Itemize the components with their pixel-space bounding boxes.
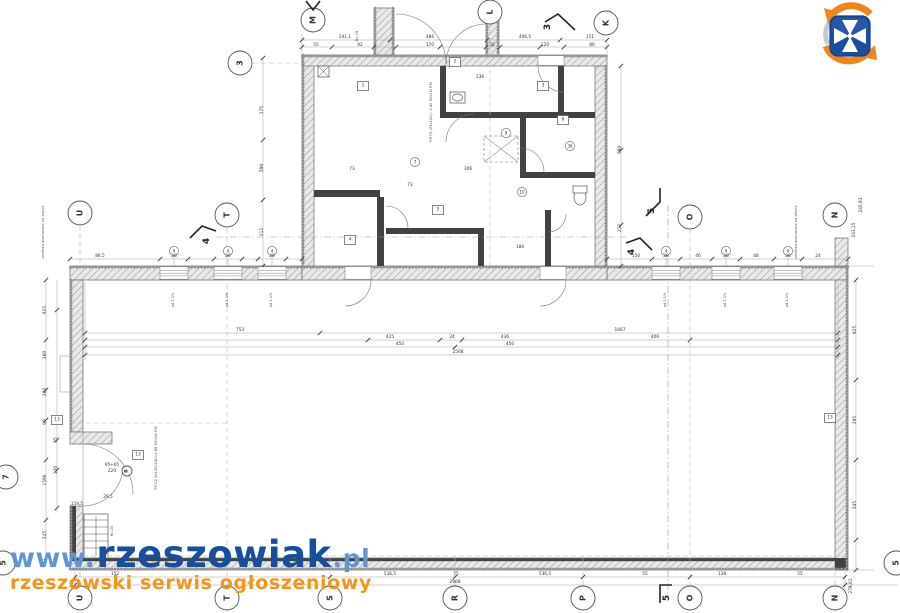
dim-label: 58 [489,42,495,48]
watermark-domain: www.rzeszowiak.pl [10,536,372,573]
dim-label: 48 [753,253,759,259]
window-label: pd 3.1% [171,292,175,307]
dim-label: 925 [42,306,48,314]
dim-label: 28 [171,253,177,259]
ref-label: 4 [227,249,230,254]
watermark-brand: rzeszowiak [96,536,331,573]
dim-label: 75 [453,571,459,577]
window-label: pd 3.1% [225,292,229,307]
window-label: pd 3.1% [723,292,727,307]
axis-label-U: U [76,595,85,602]
floor-plan-drawing: pd 3.1%pd 3.1%pd 3.1%pd 3.1%pd 3.1%pd 3.… [0,0,900,613]
dim-label: 1590 [42,474,48,485]
annotation: P.P.75 (25x120) - 2,40 50x1M P.M [429,82,433,141]
dim-label: 26 [225,253,231,259]
dim-label: 2568 [453,349,464,355]
partition [440,112,595,118]
annotation: Hp 25 [355,31,359,42]
section-label-5: 5 [662,595,672,601]
section-flag [190,226,216,238]
marker-box-label: 13 [54,417,60,423]
dim-label: 486 [426,34,434,40]
door-opening [540,267,566,280]
dim-label: 28 [663,253,669,259]
dim-label: 212 [617,224,623,232]
dim-label: 590 [259,164,265,172]
axis-label-N: N [831,212,840,219]
dim-label: 86 [589,42,595,48]
dim-label: 86,5 [95,253,105,259]
dim-label: 208 [42,388,48,396]
sink-basin [453,94,463,101]
door-opening [538,56,564,66]
watermark-tld: .pl [333,546,370,571]
dim-label: 55 [642,571,648,577]
dim-label: 243,15 [851,222,857,237]
marker-box-label: 13 [827,415,833,421]
axis-label-U: U [76,210,85,217]
dim-label: 28 [785,253,791,259]
dim-label: 1667 [615,327,626,333]
axis-label-K: K [602,19,611,26]
hall-walls [60,238,848,570]
site-logo [824,6,877,61]
dim-label: 28 [269,253,275,259]
marker-box-label: 6 [562,117,565,123]
dim-label: 55 [313,42,319,48]
dim-label: 119,5 [71,501,84,507]
ref-label: 4 [787,249,790,254]
axis-label-N: N [831,595,840,602]
door-arc [386,206,408,228]
dim-label: 279,81 [848,578,854,593]
marker-box-label: 3 [542,83,545,89]
dim-label: 925 [852,326,858,334]
dim-label: 120 [53,466,59,474]
dim-label: 450 [506,341,514,347]
dim-label: 73 [349,166,355,172]
section-label-4: 4 [202,238,212,244]
marker-box-label: 1 [362,83,365,89]
hall-inner-outline [83,280,835,558]
dim-label: 245,93 [858,197,864,212]
partition [545,210,551,266]
window-label: pd 3.1% [663,292,667,307]
axis-label-M: M [309,16,318,24]
dim-label: 536,5 [539,571,552,577]
partition [314,190,380,197]
partition [558,66,564,112]
axis-label-O: O [686,213,695,220]
west-pilaster [60,356,70,392]
annotation: obróbka blacharska na attyce [794,205,798,259]
section-label-5: 5 [647,208,657,214]
dim-label: 425 [386,334,394,340]
building-walls [302,8,607,266]
ref-label: 10 [519,190,525,195]
window-label: pd 3.1% [269,292,273,307]
dim-label: 753 [236,327,244,333]
ref-label: 4 [665,249,668,254]
dim-label: 24 [815,253,821,259]
dim-label: 450 [396,341,404,347]
dim-label: 536,5 [384,571,397,577]
dim-label: 55 [53,437,59,443]
dim-label: 160 [42,351,48,359]
axis-label-T: T [223,595,232,601]
ref-label: 9 [505,131,508,136]
dim-label: 306 [464,166,472,172]
marker-box-label: 13 [135,452,141,458]
dim-label: 295 [852,416,858,424]
door-arc [446,114,474,142]
dim-label: 406 [651,334,659,340]
partition [478,234,484,266]
ref-label: 4 [173,249,176,254]
marker-box-label: 4 [349,237,352,243]
watermark-tagline: rzeszowski serwis ogłoszeniowy [10,574,372,593]
dim-label: 186 [516,244,524,250]
dim-label: 241,1 [339,34,352,40]
axis-label-7: 7 [2,474,11,480]
door-arc [83,466,123,506]
logo-orange-arc-top [831,6,870,16]
dim-label: 46 [695,253,701,259]
annotation: P.P.O2 5x120x240=2,88 50x1M P.M [154,426,158,489]
dim-label: 28 [723,253,729,259]
marker-box-label: 2 [454,59,457,65]
building-north-stub-a [374,8,394,55]
annotation: obróbka blacharska na attyce [41,205,45,259]
dim-label: 92 [357,42,363,48]
partition [386,228,484,234]
dim-label: 436 [501,334,509,340]
axis-label-S: S [326,595,335,601]
watermark-www: www. [10,545,95,572]
dim-label: 245 [852,501,858,509]
axis-label-R: R [451,595,460,601]
ref-label: 4 [725,249,728,254]
dim-label: 55 [797,571,803,577]
axis-label-5: 5 [0,560,8,566]
ref-label: 4 [271,249,274,254]
partition [440,66,446,112]
ref-label: 36 [567,144,573,149]
axis-label-5: 5 [892,560,900,566]
dim-label: 24 [449,334,455,340]
section-label-3: 3 [543,24,553,30]
dim-label: 90 [42,419,48,425]
axis-label-L: L [486,9,495,14]
axis-label-3: 3 [236,60,245,66]
dim-label: 236 [476,74,484,80]
dim-label: 120 [541,42,549,48]
dim-label: 29,5 [103,494,113,500]
dim-label: 150 [632,253,640,259]
section-flag [626,238,652,250]
dim-label: 170 [426,42,434,48]
dim-label: 151 [586,34,594,40]
fixtures [84,66,587,558]
hall-west-notch [70,432,112,444]
dim-label: 2668 [450,579,461,585]
door-arc [345,280,371,306]
marker-box-label: 5 [437,207,440,213]
partition [520,172,595,178]
dim-label: 220 [108,468,116,474]
axis-label-B: B [124,469,130,473]
axis-label-P: P [579,595,588,601]
axis-label-T: T [223,212,232,218]
dim-label: 406,5 [519,34,532,40]
partition [520,118,526,172]
dim-label: 590 [617,146,623,154]
dim-label: 212 [259,228,265,236]
hall-east-stub [835,238,848,266]
window-label: pd 3.1% [785,292,789,307]
door-opening [345,267,371,280]
partition [377,197,384,266]
ref-label: 7 [414,160,417,165]
toilet-tank [573,186,587,193]
dim-label: 95+65 [105,462,120,468]
watermark: www.rzeszowiak.pl rzeszowski serwis ogło… [10,536,372,593]
dim-label: 138 [718,571,726,577]
dim-label: 73 [407,182,413,188]
door-arc [540,280,566,306]
dim-label: 175 [259,106,265,114]
axis-label-O: O [686,594,695,601]
